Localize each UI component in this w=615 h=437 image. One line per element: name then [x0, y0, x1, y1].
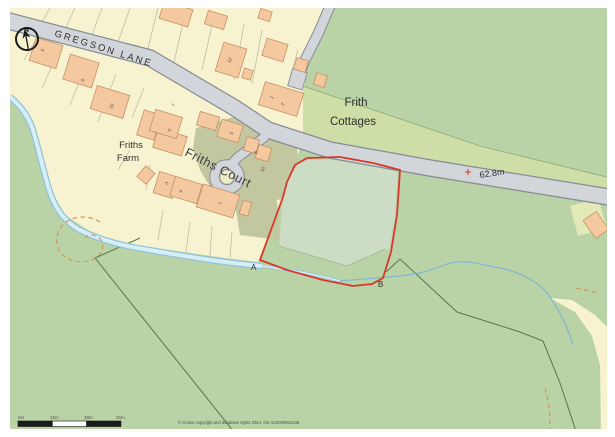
place-label-frith-cottages-1: Frith — [345, 97, 368, 109]
marker-a-label: A — [251, 263, 257, 272]
place-label-truncated: k — [2, 115, 8, 127]
scale-segment-1 — [18, 421, 52, 427]
scale-label-0: 0m — [18, 415, 25, 420]
map-page: GREGSON LANE Friths Court Frith Cottages… — [0, 0, 615, 437]
scale-segment-3 — [87, 421, 121, 427]
copyright-text: © Crown copyright and database rights 20… — [178, 420, 300, 425]
scale-label-30: 30m — [84, 415, 93, 420]
plot-interior — [279, 159, 398, 266]
place-label-friths-farm-2: Farm — [117, 153, 139, 164]
scale-label-15: 15m — [50, 415, 59, 420]
scale-label-45: 45m — [116, 415, 125, 420]
map-canvas: GREGSON LANE Friths Court Frith Cottages… — [0, 0, 615, 437]
place-label-frith-cottages-2: Cottages — [330, 116, 376, 128]
scale-segment-2 — [52, 421, 86, 427]
place-label-friths-farm-1: Friths — [119, 140, 143, 151]
marker-b-label: B — [378, 280, 383, 289]
map-layers: GREGSON LANE Friths Court Frith Cottages… — [2, 1, 615, 437]
